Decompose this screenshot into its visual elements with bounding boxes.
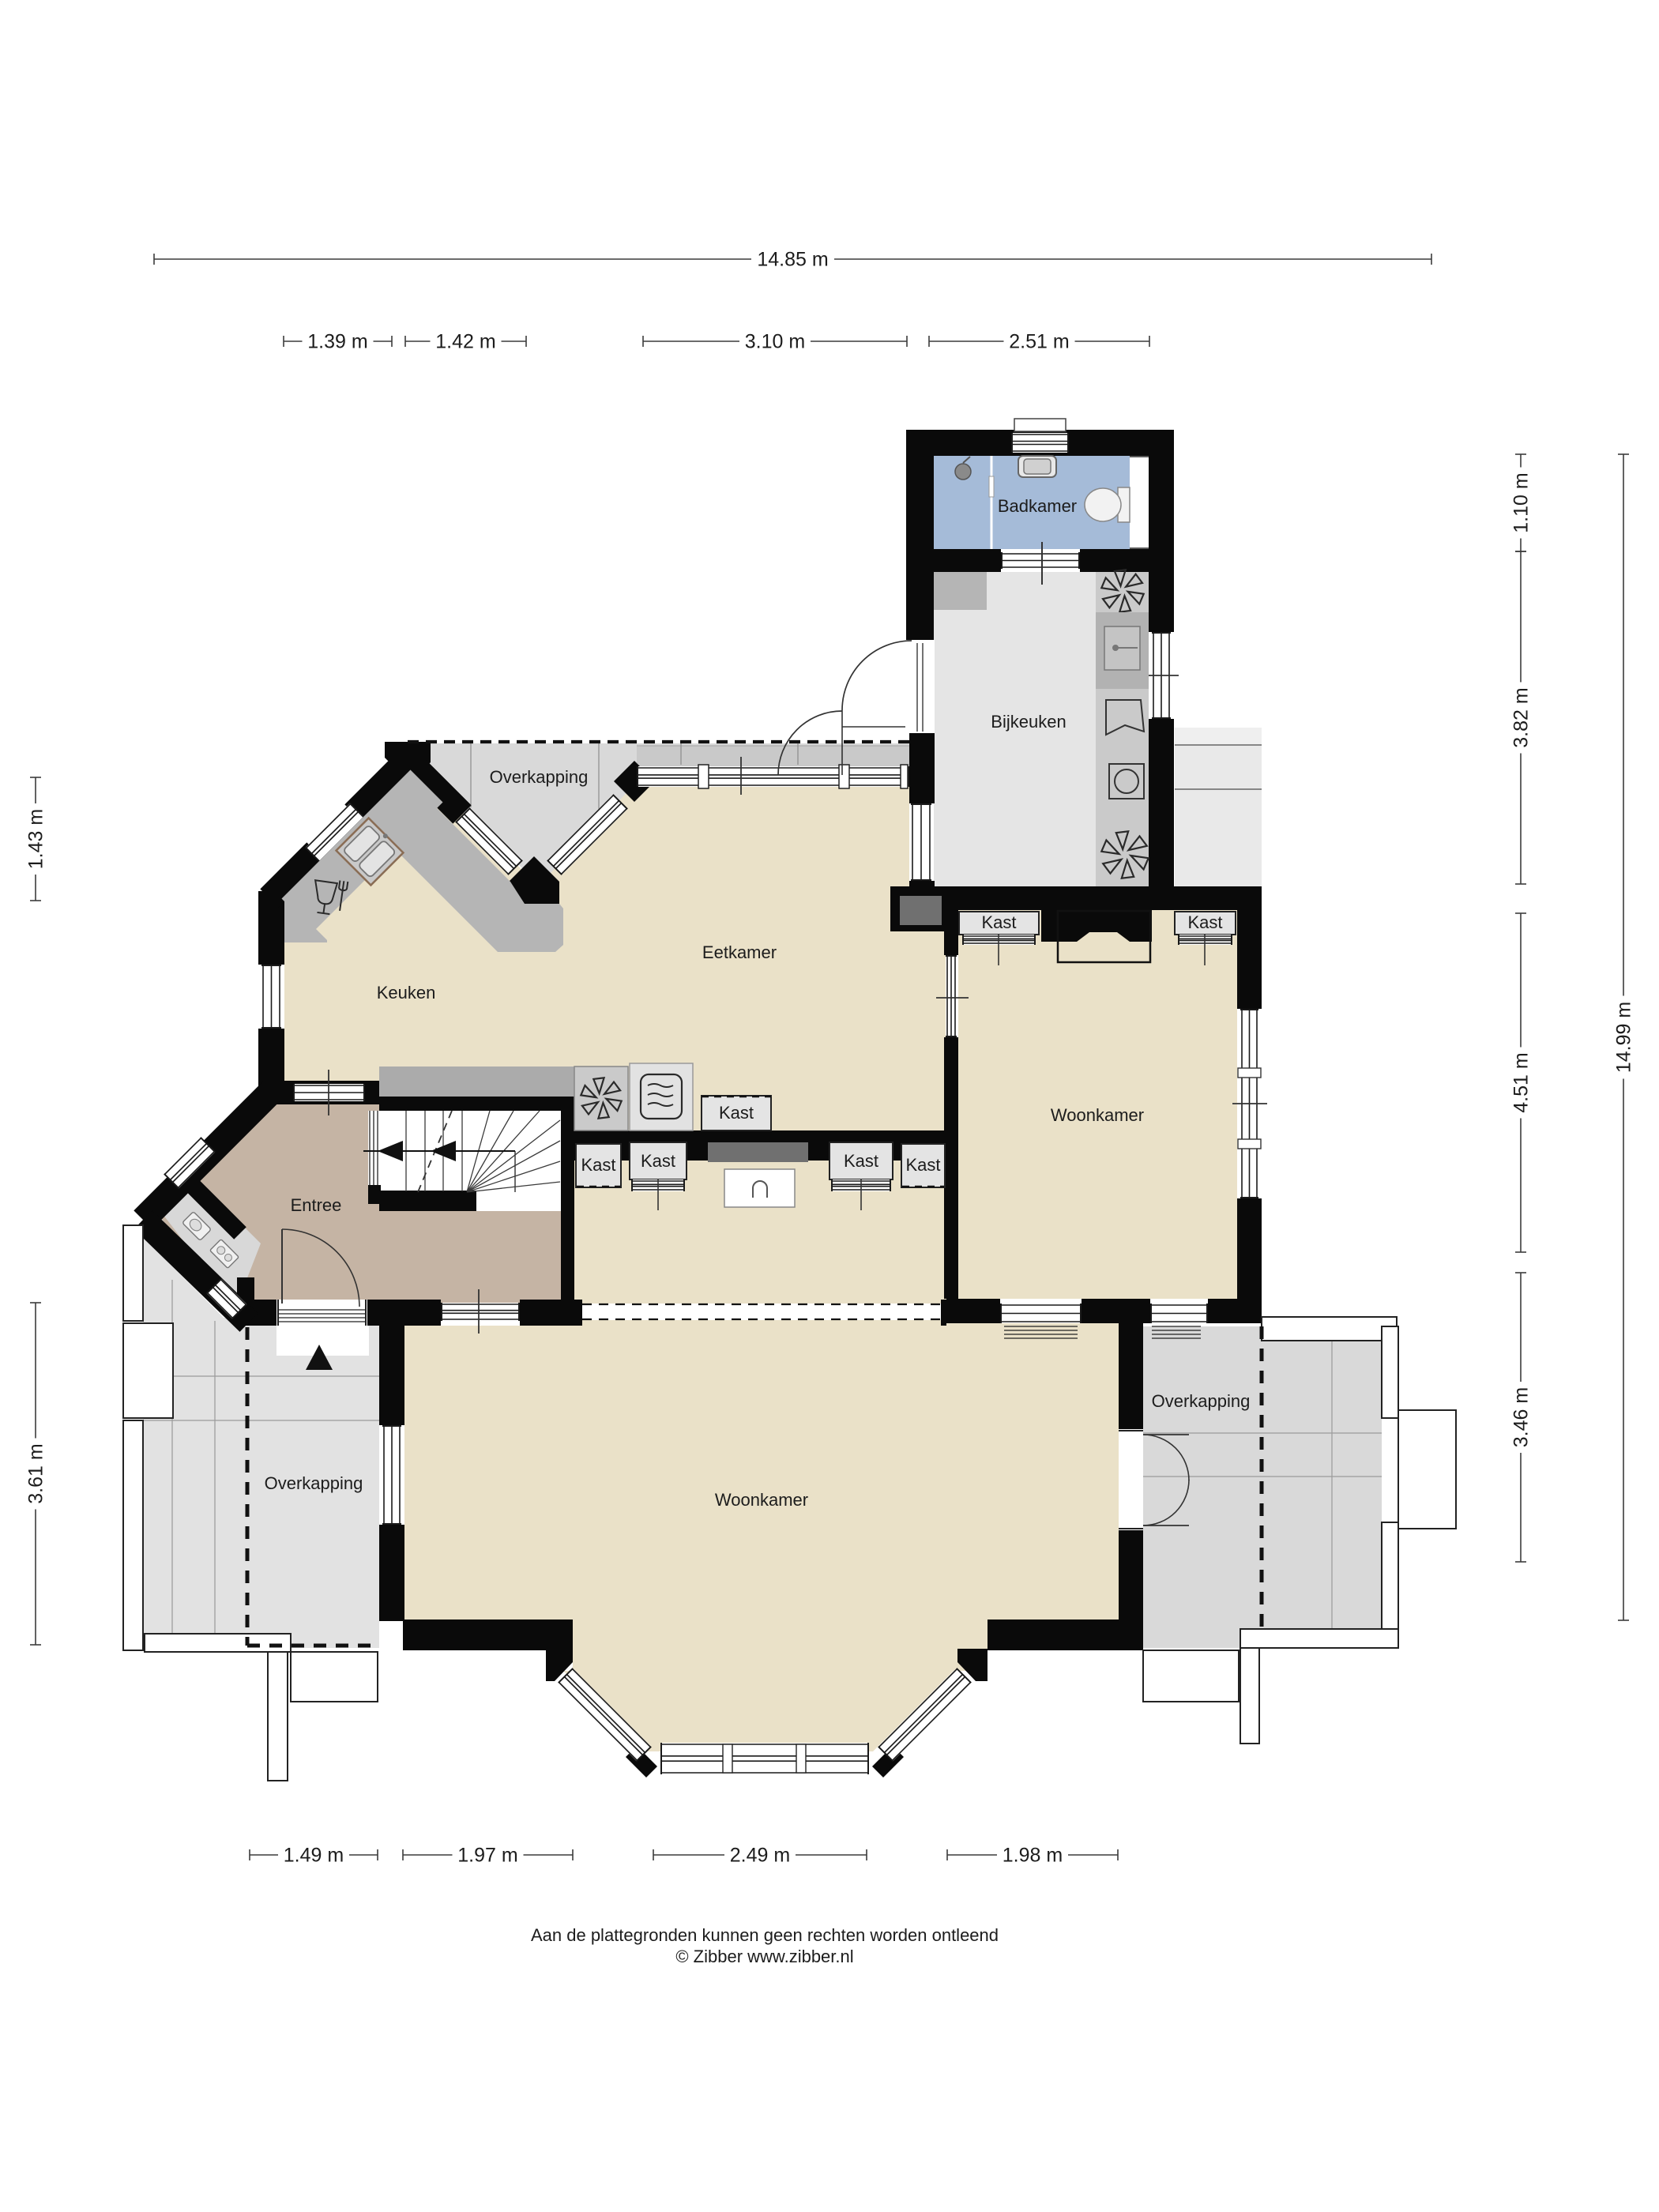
svg-text:3.82 m: 3.82 m [1510,687,1533,747]
svg-text:Overkapping: Overkapping [1152,1391,1251,1411]
svg-text:Kast: Kast [1187,912,1222,932]
svg-text:1.39 m: 1.39 m [307,331,367,353]
svg-text:1.49 m: 1.49 m [284,1845,344,1867]
svg-text:Woonkamer: Woonkamer [715,1490,808,1510]
svg-text:Kast: Kast [905,1155,940,1175]
svg-text:Eetkamer: Eetkamer [702,942,777,962]
svg-text:1.10 m: 1.10 m [1510,472,1533,532]
svg-text:1.98 m: 1.98 m [1003,1845,1063,1867]
svg-text:Kast: Kast [981,912,1016,932]
svg-text:1.43 m: 1.43 m [25,809,47,869]
svg-text:Kast: Kast [844,1151,878,1171]
svg-text:Overkapping: Overkapping [490,767,589,787]
svg-text:Entree: Entree [291,1195,342,1215]
svg-text:Kast: Kast [641,1151,675,1171]
svg-text:3.61 m: 3.61 m [25,1443,47,1503]
svg-text:Badkamer: Badkamer [998,496,1077,516]
svg-text:Kast: Kast [719,1103,754,1123]
svg-text:1.42 m: 1.42 m [435,331,495,353]
svg-text:4.51 m: 4.51 m [1510,1052,1533,1112]
svg-text:© Zibber www.zibber.nl: © Zibber www.zibber.nl [675,1947,853,1966]
svg-text:Woonkamer: Woonkamer [1051,1105,1144,1125]
svg-text:3.46 m: 3.46 m [1510,1387,1533,1447]
svg-text:Overkapping: Overkapping [265,1473,363,1493]
svg-text:Aan de plattegronden kunnen ge: Aan de plattegronden kunnen geen rechten… [531,1925,999,1945]
svg-text:1.97 m: 1.97 m [457,1845,517,1867]
svg-text:Kast: Kast [581,1155,615,1175]
svg-text:14.85 m: 14.85 m [757,249,828,271]
svg-text:Keuken: Keuken [377,983,436,1003]
svg-text:Bijkeuken: Bijkeuken [991,712,1066,732]
svg-text:14.99 m: 14.99 m [1613,1002,1635,1073]
svg-text:2.49 m: 2.49 m [730,1845,790,1867]
svg-text:3.10 m: 3.10 m [745,331,805,353]
svg-text:2.51 m: 2.51 m [1009,331,1069,353]
